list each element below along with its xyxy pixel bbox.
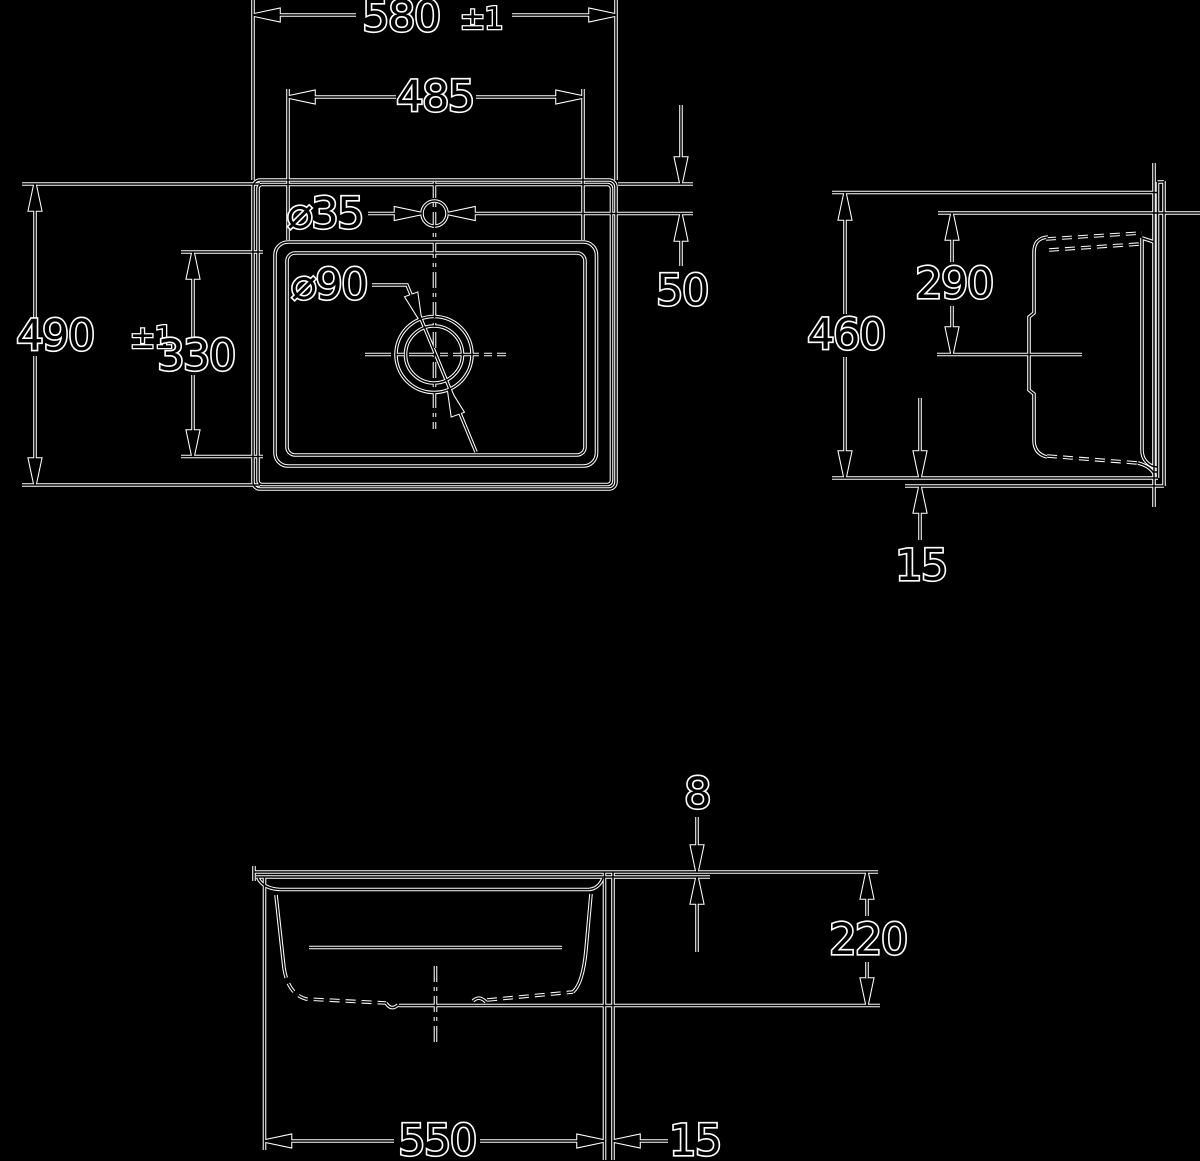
outline-pass (22, 0, 1200, 1160)
ink-pass (22, 0, 1200, 1160)
sink-dimension-drawing: 580 ±1 485 ⌀35 ⌀90 490 ±1 330 50 460 290… (0, 0, 1200, 1161)
dim-label-bowl-width: 485 (396, 72, 474, 122)
dim-label-side-depth: 460 (807, 310, 885, 360)
dimension-labels: 580 ±1 485 ⌀35 ⌀90 490 ±1 330 50 460 290… (16, 0, 993, 1161)
dim-label-drain-center-offset: 290 (915, 259, 993, 309)
dim-label-rim-thickness: 8 (684, 769, 710, 819)
dim-label-bowl-depth: 330 (157, 331, 235, 381)
dim-label-drain-diameter: ⌀90 (291, 260, 367, 310)
dim-label-overall-width-tolerance: ±1 (460, 1, 503, 37)
dim-label-bowl-bottom-width: 550 (398, 1116, 476, 1161)
dim-label-bowl-height: 220 (829, 915, 907, 965)
dim-label-overall-depth: 490 (16, 311, 94, 361)
dim-label-edge-width: 15 (669, 1116, 721, 1161)
drawing-canvas: 580 ±1 485 ⌀35 ⌀90 490 ±1 330 50 460 290… (0, 0, 1200, 1161)
dim-label-overall-width: 580 (362, 0, 440, 42)
dim-label-side-edge-lip: 15 (895, 541, 947, 591)
dim-label-tap-hole-diameter: ⌀35 (287, 189, 363, 239)
dim-label-tap-hole-offset: 50 (656, 266, 708, 316)
